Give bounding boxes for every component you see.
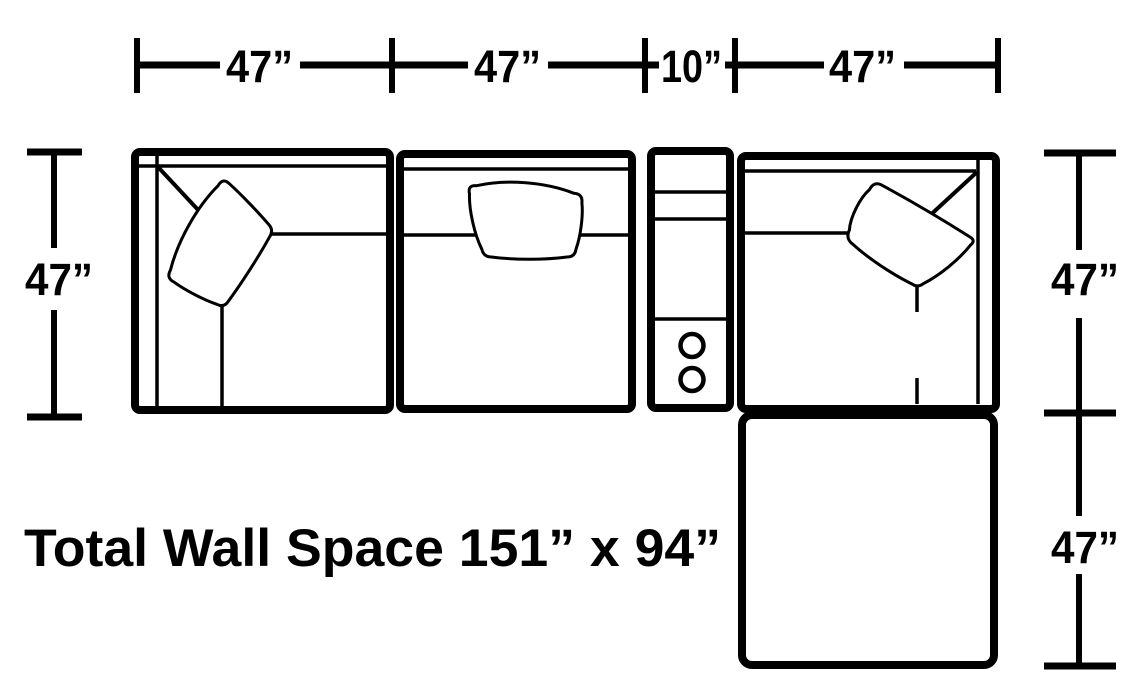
svg-text:10”: 10”: [661, 41, 722, 92]
svg-text:47”: 47”: [1051, 522, 1119, 573]
svg-text:47”: 47”: [474, 41, 541, 92]
svg-text:47”: 47”: [1051, 254, 1119, 305]
svg-text:Total Wall Space 151” x 94”: Total Wall Space 151” x 94”: [24, 519, 721, 578]
svg-text:47”: 47”: [829, 41, 896, 92]
svg-text:47”: 47”: [25, 254, 93, 305]
svg-text:47”: 47”: [226, 41, 293, 92]
